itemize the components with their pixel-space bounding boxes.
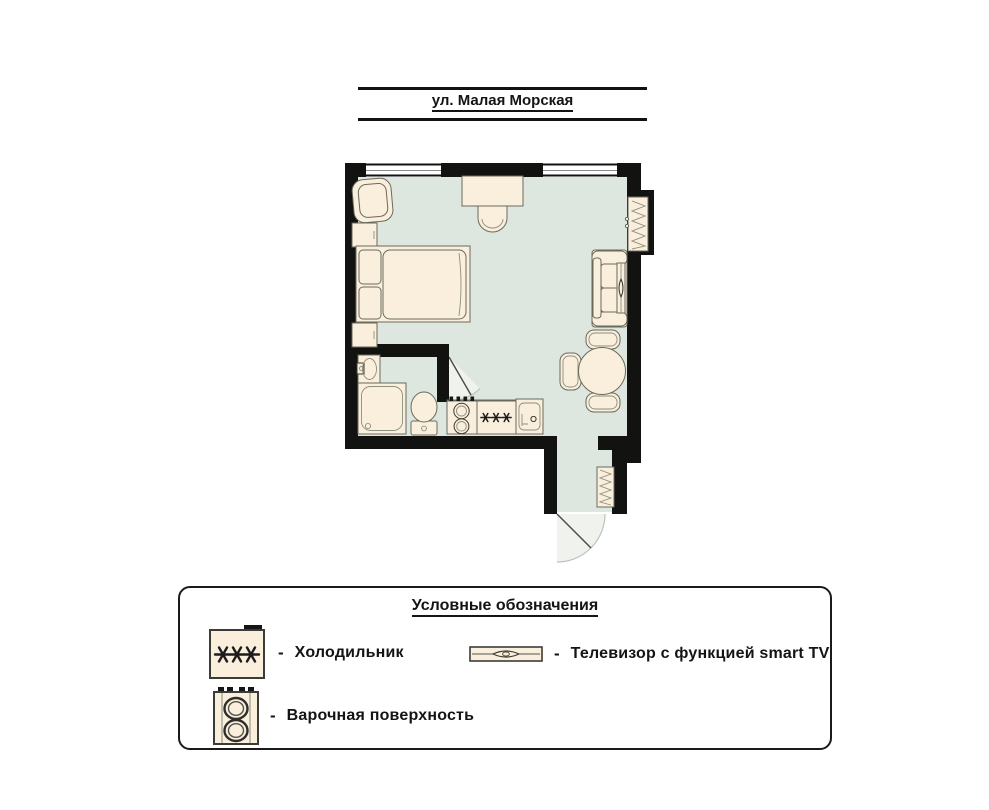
legend-box: Условные обозначения - Холодильник - Тел… [178, 586, 832, 750]
toilet [411, 392, 437, 435]
radiator-icon [625, 197, 648, 251]
legend-label-fridge: Холодильник [295, 644, 404, 662]
fridge-icon [207, 625, 267, 681]
window [543, 163, 617, 177]
nightstand [352, 323, 377, 347]
bed [356, 246, 470, 322]
armchair [351, 177, 394, 223]
dining-chair [586, 393, 620, 412]
street-name: ул. Малая Морская [432, 92, 574, 112]
fridge-icon [477, 401, 516, 434]
hob-icon [447, 397, 477, 435]
dining-chair [586, 330, 620, 349]
dining-table [579, 348, 626, 395]
legend-item-hob: - Варочная поверхность [213, 687, 474, 745]
desk [462, 176, 523, 206]
tv-icon [617, 263, 625, 313]
kitchen-sink [516, 399, 543, 434]
shower [358, 383, 406, 434]
nightstand [352, 223, 377, 247]
entry-door [557, 514, 605, 562]
legend-item-tv: - Телевизор с функцией smart TV [469, 626, 829, 682]
dining-chair [560, 353, 581, 390]
tv-icon [469, 646, 543, 662]
legend-dash: - [554, 644, 560, 664]
legend-dash: - [278, 643, 284, 663]
hob-icon [213, 687, 259, 745]
street-banner: ул. Малая Морская [358, 92, 647, 110]
bathroom-sink [357, 355, 380, 383]
legend-item-fridge: - Холодильник [207, 625, 404, 681]
page: ул. Малая Морская [0, 0, 989, 810]
radiator-icon [597, 467, 614, 507]
street-banner-bottom-line [358, 118, 647, 121]
floor-plan [340, 150, 670, 570]
window [366, 163, 441, 177]
legend-label-tv: Телевизор с функцией smart TV [571, 645, 830, 663]
legend-label-hob: Варочная поверхность [287, 707, 474, 725]
legend-title: Условные обозначения [180, 597, 830, 615]
street-banner-top-line [358, 87, 647, 90]
legend-dash: - [270, 706, 276, 726]
